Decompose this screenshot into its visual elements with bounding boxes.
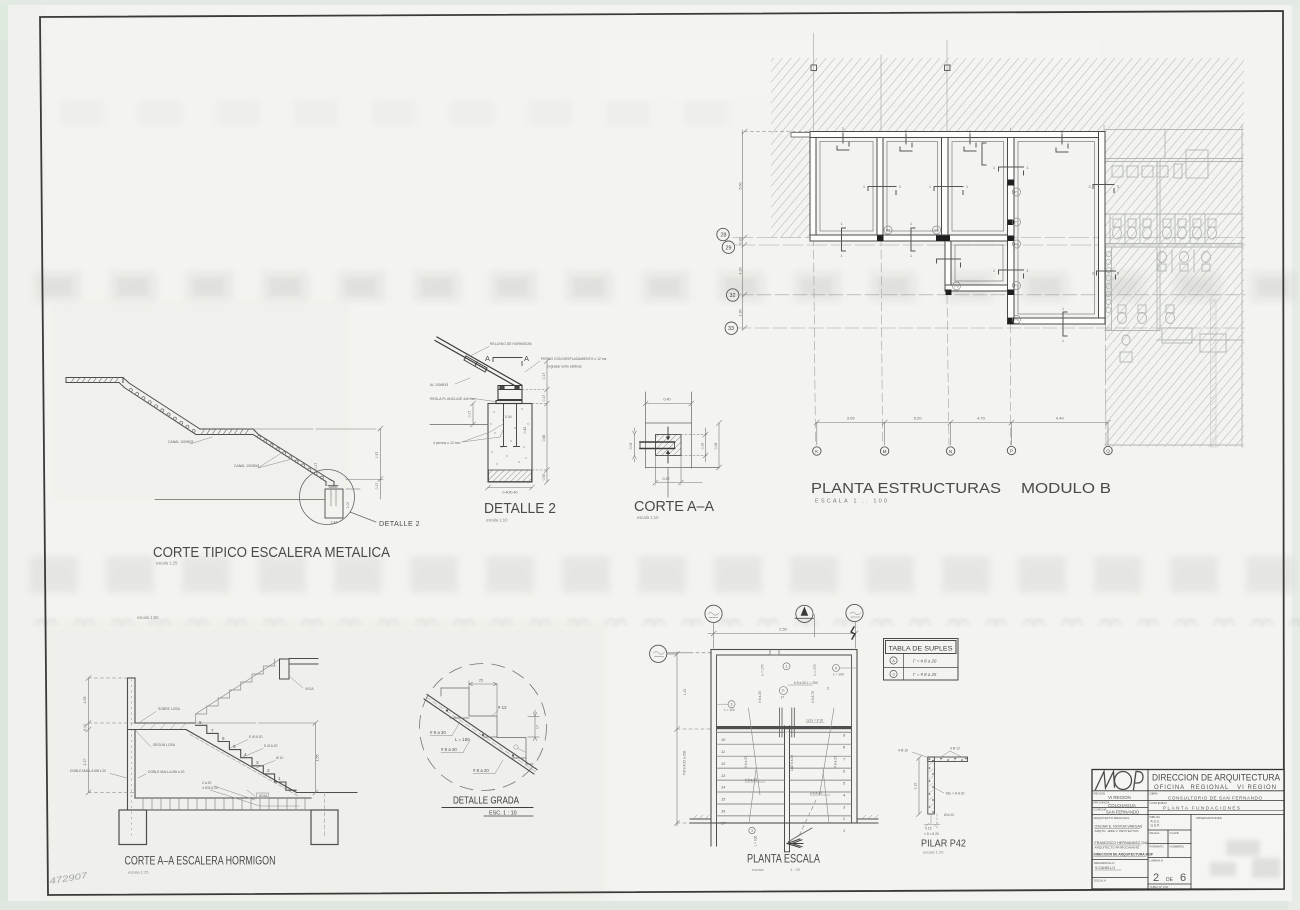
svg-text:# 8 A 70: # 8 A 70 xyxy=(811,691,815,703)
svg-text:32: 32 xyxy=(730,293,736,299)
svg-text:DETALLE GRADA: DETALLE GRADA xyxy=(453,795,519,807)
svg-text:SEGUN LOSA: SEGUN LOSA xyxy=(153,743,176,747)
svg-text:1: 1 xyxy=(1062,307,1064,311)
svg-text:SOBRE LOSA: SOBRE LOSA xyxy=(158,707,181,711)
svg-text:0.14: 0.14 xyxy=(83,724,87,731)
svg-text:P1: P1 xyxy=(1014,190,1018,194)
svg-text:CANAL 100/50/3: CANAL 100/50/3 xyxy=(234,464,259,468)
svg-text:1: 1 xyxy=(993,269,995,273)
svg-text:# 8 a 20: # 8 a 20 xyxy=(745,778,757,782)
svg-text:0.88: 0.88 xyxy=(542,435,546,442)
svg-text:1.37: 1.37 xyxy=(83,759,87,766)
svg-text:0.42: 0.42 xyxy=(523,427,527,434)
svg-text:MODULO B: MODULO B xyxy=(1021,481,1111,497)
svg-text:P4: P4 xyxy=(1014,242,1018,246)
svg-text:P3: P3 xyxy=(1014,284,1018,288)
svg-text:3: 3 xyxy=(256,760,259,765)
svg-text:3: 3 xyxy=(1117,185,1119,189)
svg-text:P9: P9 xyxy=(954,284,958,288)
svg-text:L = 170: L = 170 xyxy=(813,664,817,675)
svg-text:14: 14 xyxy=(721,786,725,790)
svg-text:# 8 a 20: # 8 a 20 xyxy=(430,730,446,735)
svg-text:M: M xyxy=(883,449,887,454)
svg-text:1x1x = # 10: 1x1x = # 10 xyxy=(806,719,823,723)
svg-text:G.S.P.: G.S.P. xyxy=(1151,824,1161,828)
svg-text:CONSULTORIO DE SAN FERNANDO: CONSULTORIO DE SAN FERNANDO xyxy=(1168,795,1262,800)
svg-text:OBRA: OBRA xyxy=(1150,792,1158,796)
svg-text:FORMATO: FORMATO xyxy=(1150,844,1165,848)
svg-text:1: 1 xyxy=(841,254,843,258)
svg-text:29: 29 xyxy=(726,246,732,252)
svg-text:DESARROLLO: DESARROLLO xyxy=(1094,861,1115,865)
svg-text:OFICINA REGIONAL VI REGION: OFICINA REGIONAL VI REGION xyxy=(1154,785,1276,791)
svg-text:RELLENO DE HORMIGON: RELLENO DE HORMIGON xyxy=(490,342,532,346)
svg-text:# Ø 8 A 20 a 200: # Ø 8 A 20 a 200 xyxy=(683,751,687,776)
svg-text:8: 8 xyxy=(199,720,202,725)
svg-text:NOMBRES: NOMBRES xyxy=(1170,844,1185,848)
svg-text:ESCALA: ESCALA xyxy=(1094,879,1106,883)
svg-text:escala 1:10: escala 1:10 xyxy=(637,515,659,520)
svg-text:0.40: 0.40 xyxy=(664,398,671,402)
svg-text:ESCALA 1 .. 100: ESCALA 1 .. 100 xyxy=(815,499,887,505)
svg-text:5.60: 5.60 xyxy=(739,183,743,190)
svg-text:11: 11 xyxy=(721,750,725,754)
svg-text:A: A xyxy=(524,354,529,363)
svg-text:3: 3 xyxy=(751,829,753,833)
svg-text:ARQTO. JEFE V. PROYECTOS: ARQTO. JEFE V. PROYECTOS xyxy=(1095,829,1139,833)
svg-text:1xØ 8 a 20: 1xØ 8 a 20 xyxy=(790,755,794,771)
svg-text:1: 1 xyxy=(910,222,912,226)
svg-text:# 8 a 20: # 8 a 20 xyxy=(744,756,748,768)
svg-text:SAN FERNANDO: SAN FERNANDO xyxy=(1106,810,1140,815)
svg-text:# 8 a 20: # 8 a 20 xyxy=(441,747,457,752)
svg-text:P6: P6 xyxy=(1014,318,1018,322)
svg-text:ARQUITECTO REGIONAL: ARQUITECTO REGIONAL xyxy=(1094,816,1130,820)
svg-text:1: 1 xyxy=(843,829,845,833)
svg-text:1.37: 1.37 xyxy=(375,452,379,459)
svg-text:0.17: 0.17 xyxy=(542,395,546,402)
svg-text:3: 3 xyxy=(892,673,894,677)
svg-text:CORTE TIPICO ESCALERA METALICA: CORTE TIPICO ESCALERA METALICA xyxy=(153,545,390,561)
svg-text:L = 170: L = 170 xyxy=(761,664,765,675)
svg-text:AL 100/50/3: AL 100/50/3 xyxy=(430,383,448,387)
svg-text:1.90: 1.90 xyxy=(739,310,743,317)
svg-text:L = 100: L = 100 xyxy=(833,673,844,677)
svg-text:4: 4 xyxy=(843,793,845,797)
svg-text:4 pernos u 12 mm.: 4 pernos u 12 mm. xyxy=(433,441,461,445)
svg-text:P7: P7 xyxy=(1014,220,1018,224)
svg-text:× 8 × 8 20: × 8 × 8 20 xyxy=(924,832,939,836)
svg-text:PLANTA FUNDACIONES: PLANTA FUNDACIONES xyxy=(1163,805,1240,810)
svg-text:1: 1 xyxy=(278,776,281,781)
svg-text:2: 2 xyxy=(969,130,971,134)
svg-text:Q: Q xyxy=(1106,448,1110,453)
svg-text:3: 3 xyxy=(731,703,733,707)
svg-text:DETALLE 2: DETALLE 2 xyxy=(379,519,420,528)
svg-text:PLANTA ESTRUCTURAS: PLANTA ESTRUCTURAS xyxy=(811,481,1001,497)
svg-text:1.55: 1.55 xyxy=(316,755,320,762)
svg-text:6: 6 xyxy=(1180,872,1186,884)
svg-text:DE: DE xyxy=(1166,877,1174,883)
svg-text:0.16: 0.16 xyxy=(701,443,705,450)
svg-text:0.04: 0.04 xyxy=(505,415,512,419)
svg-text:1: 1 xyxy=(841,222,843,226)
svg-text:P5: P5 xyxy=(886,228,890,232)
svg-text:DOBLE MALLA Ø8 x 20: DOBLE MALLA Ø8 x 20 xyxy=(70,769,106,773)
svg-text:# 8 a 20: # 8 a 20 xyxy=(758,691,762,703)
svg-text:VI REGION: VI REGION xyxy=(1108,795,1131,800)
svg-text:1: 1 xyxy=(899,185,901,189)
svg-text:# 8 a 20 L = 250: # 8 a 20 L = 250 xyxy=(794,681,818,685)
svg-text:REGION: REGION xyxy=(1094,792,1105,796)
svg-text:0.40/0.40: 0.40/0.40 xyxy=(503,491,518,495)
svg-text:ARQUITECTO PATROCINANTE: ARQUITECTO PATROCINANTE xyxy=(1095,845,1140,849)
svg-text:0.17: 0.17 xyxy=(468,411,472,418)
svg-text:4 Ø 16: 4 Ø 16 xyxy=(898,749,908,753)
svg-text:E Ø A 20: E Ø A 20 xyxy=(264,744,277,748)
svg-text:escala 1:25: escala 1:25 xyxy=(128,870,149,875)
svg-text:engrasar entre pletinas: engrasar entre pletinas xyxy=(547,365,582,369)
svg-text:S.CANELLO: S.CANELLO xyxy=(1095,866,1115,870)
svg-text:2: 2 xyxy=(1153,872,1159,884)
svg-text:3: 3 xyxy=(1092,272,1094,276)
svg-text:17: 17 xyxy=(536,725,540,729)
svg-text:1: 1 xyxy=(966,185,968,189)
svg-text:2 a 20: 2 a 20 xyxy=(202,781,212,785)
svg-text:N: N xyxy=(949,449,952,454)
svg-text:1.05: 1.05 xyxy=(83,697,87,704)
svg-text:5.20: 5.20 xyxy=(914,416,923,421)
svg-text:DIRECCION DE ARQUITECTURA: DIRECCION DE ARQUITECTURA xyxy=(1152,773,1280,783)
svg-text:escala: escala xyxy=(752,867,764,872)
svg-text:4 Ø 12: 4 Ø 12 xyxy=(950,747,960,751)
svg-text:# 12: # 12 xyxy=(498,705,507,710)
svg-text:1.10: 1.10 xyxy=(914,783,918,790)
svg-text:0.20: 0.20 xyxy=(739,238,743,245)
svg-text:COLCHAGUA: COLCHAGUA xyxy=(1108,803,1136,808)
svg-text:Ø 10: Ø 10 xyxy=(276,756,283,760)
svg-text:1.44: 1.44 xyxy=(331,521,338,525)
svg-text:4.70: 4.70 xyxy=(977,416,986,421)
svg-text:DETALLE 2: DETALLE 2 xyxy=(484,501,556,517)
svg-text:DIBUJA: DIBUJA xyxy=(1150,815,1160,819)
svg-text:OBSERVACIONES: OBSERVACIONES xyxy=(1196,816,1222,820)
svg-text:1 : 20: 1 : 20 xyxy=(790,867,801,872)
svg-text:1.15: 1.15 xyxy=(683,689,687,696)
svg-text:1: 1 xyxy=(993,166,995,170)
svg-text:1: 1 xyxy=(1062,339,1064,343)
svg-text:L = 100: L = 100 xyxy=(724,708,735,712)
svg-text:escala 1:50: escala 1:50 xyxy=(137,615,159,620)
svg-text:VIGA: VIGA xyxy=(305,687,314,691)
svg-text:LAMINA N: LAMINA N xyxy=(1150,858,1164,862)
svg-text:7: 7 xyxy=(211,728,214,733)
svg-text:CLAVE: CLAVE xyxy=(1170,831,1179,835)
svg-text:CANAL 100/50/3: CANAL 100/50/3 xyxy=(168,440,193,444)
svg-text:Γ = # 8 a 25: Γ = # 8 a 25 xyxy=(913,672,937,677)
svg-text:2: 2 xyxy=(267,768,270,773)
svg-text:escala 1:10: escala 1:10 xyxy=(486,518,508,523)
svg-text:DB. × 8 A 20: DB. × 8 A 20 xyxy=(946,792,965,796)
svg-text:2: 2 xyxy=(905,130,907,134)
svg-text:TABLA DE SUPLES: TABLA DE SUPLES xyxy=(889,646,953,653)
svg-text:REGLA PL ANCLAJE 4x5 mm.: REGLA PL ANCLAJE 4x5 mm. xyxy=(430,397,476,401)
svg-text:0.17: 0.17 xyxy=(314,463,318,470)
svg-text:TUBO Nº 278: TUBO Nº 278 xyxy=(1150,885,1169,889)
svg-text:2: 2 xyxy=(842,127,844,131)
svg-text:1: 1 xyxy=(863,185,865,189)
svg-text:# 8 a 20: # 8 a 20 xyxy=(810,791,822,795)
svg-text:1.00: 1.00 xyxy=(346,502,350,509)
svg-text:P8: P8 xyxy=(934,228,938,232)
svg-text:1: 1 xyxy=(929,185,931,189)
svg-text:1: 1 xyxy=(1027,269,1029,273)
svg-text:CORTE A–A: CORTE A–A xyxy=(634,499,714,515)
svg-text:0.08: 0.08 xyxy=(714,443,718,450)
svg-text:0.22: 0.22 xyxy=(663,477,670,481)
svg-text:0.17: 0.17 xyxy=(542,373,546,380)
svg-text:DIRECCION DE ARQUITECTURA MOP: DIRECCION DE ARQUITECTURA MOP xyxy=(1094,853,1154,857)
svg-text:ADAL: ADAL xyxy=(259,794,268,798)
svg-text:1: 1 xyxy=(1027,166,1029,170)
svg-text:6: 6 xyxy=(222,736,225,741)
svg-text:PERNO CON DESPLAZAMIENTO u 12: PERNO CON DESPLAZAMIENTO u 12 ms xyxy=(541,357,607,361)
svg-text:0.55: 0.55 xyxy=(542,474,546,481)
svg-text:Γ = # 8 a 20: Γ = # 8 a 20 xyxy=(913,659,937,664)
svg-text:PLANTA ESCALA: PLANTA ESCALA xyxy=(747,854,820,866)
svg-text:1: 1 xyxy=(786,665,788,669)
svg-text:E Ø A 20: E Ø A 20 xyxy=(249,735,262,739)
svg-text:DOBLE MALLA Ø8 a 20: DOBLE MALLA Ø8 a 20 xyxy=(148,770,184,774)
svg-text:CORTE A–A ESCALERA HORMIGON: CORTE A–A ESCALERA HORMIGON xyxy=(125,856,276,868)
svg-text:escala 1:20: escala 1:20 xyxy=(923,850,944,855)
svg-text:A: A xyxy=(485,354,490,363)
svg-text:1: 1 xyxy=(910,254,912,258)
svg-text:FECHA: FECHA xyxy=(1150,831,1160,835)
svg-text:escala 1:25: escala 1:25 xyxy=(156,561,178,566)
svg-text:# 8 a 20: # 8 a 20 xyxy=(834,756,838,768)
svg-text:# 8 a 20: # 8 a 20 xyxy=(473,768,489,773)
svg-text:33: 33 xyxy=(728,326,734,332)
svg-text:3.05: 3.05 xyxy=(847,416,856,421)
svg-text:4.40: 4.40 xyxy=(1056,416,1065,421)
svg-text:0.15: 0.15 xyxy=(925,827,932,831)
svg-text:17: 17 xyxy=(781,696,785,700)
svg-text:25: 25 xyxy=(479,679,483,683)
svg-text:0.05: 0.05 xyxy=(629,443,633,450)
svg-text:9: 9 xyxy=(835,666,837,670)
svg-text:L = 100: L = 100 xyxy=(754,835,758,846)
svg-text:28: 28 xyxy=(721,233,727,239)
svg-text:2.50: 2.50 xyxy=(779,628,786,632)
svg-text:PILAR P42: PILAR P42 xyxy=(921,839,966,850)
svg-text:4.20: 4.20 xyxy=(739,268,743,275)
svg-text:L = 150: L = 150 xyxy=(455,737,470,742)
svg-text:A: A xyxy=(892,659,895,663)
svg-text:P: P xyxy=(1010,448,1013,453)
svg-text:5: 5 xyxy=(1117,272,1119,276)
svg-text:Ø A 20: Ø A 20 xyxy=(944,813,954,817)
svg-text:3: 3 xyxy=(1089,185,1091,189)
svg-text:0.17: 0.17 xyxy=(375,483,379,490)
svg-text:COMUNA: COMUNA xyxy=(1094,808,1107,812)
